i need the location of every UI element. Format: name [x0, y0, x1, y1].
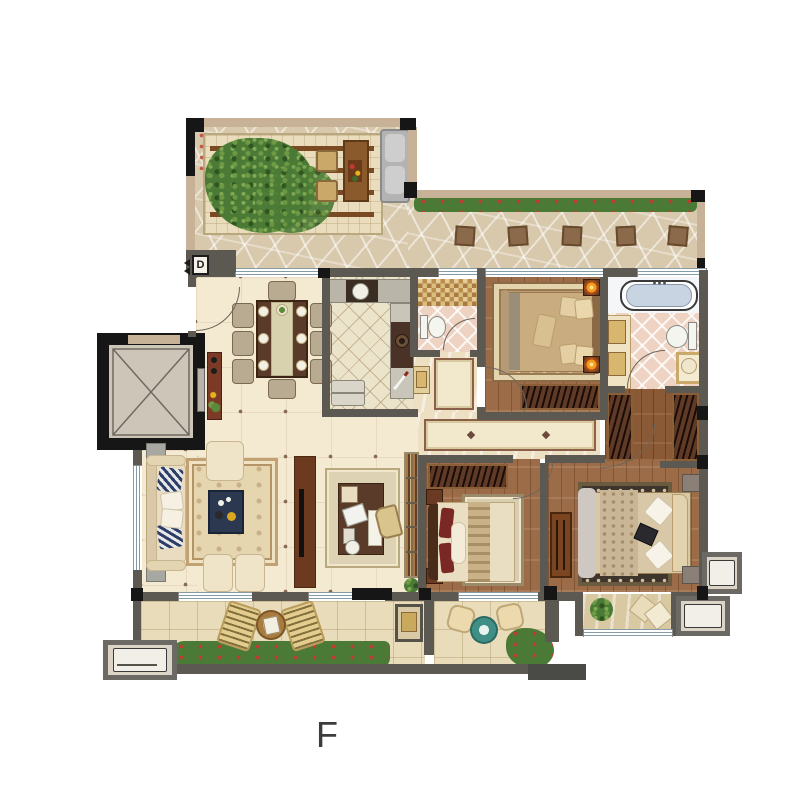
balcony-table-paper	[262, 616, 280, 636]
nightstand	[682, 474, 700, 492]
wall	[470, 350, 485, 357]
drain-arrow-icon	[184, 267, 190, 275]
balcony-step	[528, 664, 586, 680]
coffee-table-teapot	[215, 511, 223, 519]
coffee-table-bowl	[227, 512, 236, 521]
paver-stone	[507, 225, 528, 246]
dining-chair	[268, 281, 296, 301]
wall	[410, 277, 418, 352]
wall	[699, 270, 708, 600]
elevator-x-mark	[112, 348, 190, 436]
window-dining	[235, 268, 327, 277]
tub-faucet	[652, 281, 666, 285]
wall	[605, 386, 625, 393]
elevator-door	[197, 368, 205, 412]
window-guest-bath	[438, 268, 479, 277]
table-lamp	[584, 357, 599, 372]
shower-drain	[681, 358, 697, 374]
bed2-headboard	[428, 504, 438, 580]
bed2-bolster	[451, 522, 466, 564]
column	[352, 588, 392, 600]
wall	[424, 595, 434, 655]
sofa-arm	[146, 560, 186, 571]
bookshelf	[404, 452, 419, 578]
coffee-table-cup	[226, 497, 231, 502]
wall	[133, 664, 545, 674]
paver-stone	[667, 225, 689, 247]
wall	[477, 412, 608, 420]
plate	[296, 360, 307, 371]
corridor-runner	[424, 419, 596, 451]
plate	[258, 333, 269, 344]
column	[186, 132, 195, 176]
wall	[410, 350, 440, 357]
bay-plant	[590, 598, 613, 621]
mop-sink-basin	[401, 612, 417, 632]
bookshelf-cell	[406, 504, 417, 529]
wall	[603, 268, 637, 277]
tv-screen	[299, 489, 304, 557]
column	[131, 588, 143, 601]
column	[404, 182, 417, 198]
bed3-drape	[578, 488, 596, 578]
wall	[418, 455, 426, 595]
dressing-wardrobe-right	[672, 393, 699, 461]
centerpiece	[276, 304, 288, 316]
console-knob	[211, 368, 217, 374]
bed-footboard	[501, 290, 509, 374]
bath-sink	[608, 352, 626, 376]
bookshelf-cell	[406, 528, 417, 553]
balcony-slider	[458, 592, 540, 601]
armchair	[203, 554, 233, 592]
column	[544, 586, 557, 600]
wall	[186, 118, 416, 127]
window-living-south	[178, 592, 254, 601]
column	[131, 438, 143, 450]
wall	[477, 268, 485, 277]
armchair	[206, 441, 244, 481]
column	[697, 406, 708, 420]
dining-chair	[232, 331, 254, 356]
drain-arrow-icon	[184, 259, 190, 267]
console-knob	[211, 357, 217, 363]
table-lamp	[584, 280, 599, 295]
wall	[252, 592, 308, 601]
wall	[575, 592, 583, 636]
wall	[325, 268, 438, 277]
sofa-arm	[146, 455, 186, 466]
wall	[322, 409, 418, 417]
terrace-hedge	[414, 196, 697, 212]
tv-console	[294, 456, 316, 588]
pillow	[574, 298, 594, 320]
wall	[188, 331, 196, 337]
armoire-handle	[563, 520, 565, 570]
white-pillow	[160, 508, 184, 529]
column	[419, 588, 431, 600]
terrace-sofa-cushion	[385, 134, 405, 162]
column	[691, 190, 705, 202]
coffee-table-cup	[218, 500, 224, 506]
plate	[258, 306, 269, 317]
guest-toilet-bowl	[428, 316, 446, 338]
paver-stone	[615, 225, 636, 246]
plate	[296, 333, 307, 344]
ac-unit-line	[117, 664, 157, 666]
bed3-headboard	[672, 494, 688, 572]
terrace-chair	[316, 180, 338, 202]
blossom-flowers	[192, 130, 214, 170]
terrace-sofa-cushion	[385, 166, 405, 194]
master-wardrobe	[520, 384, 600, 410]
nightstand	[682, 566, 700, 584]
shower-mosaic-floor	[418, 279, 477, 306]
refrigerator-split	[331, 392, 365, 394]
paver-stone	[561, 225, 582, 246]
armchair	[235, 554, 265, 592]
wall	[418, 455, 513, 463]
bedroom2-wardrobe	[428, 464, 508, 489]
floor-plan: D F	[0, 0, 800, 800]
hall-sink-basin	[416, 371, 427, 388]
cooktop-burner	[395, 334, 409, 348]
wall	[540, 463, 548, 593]
column	[400, 118, 416, 130]
window-master	[485, 268, 605, 277]
guest-toilet-tank	[420, 315, 428, 339]
wall	[545, 455, 605, 463]
window-bath	[637, 268, 707, 277]
bookshelf-cell	[406, 553, 417, 576]
desk-fan	[345, 540, 360, 555]
ac-unit	[684, 604, 722, 628]
dining-chair	[232, 359, 254, 384]
bookshelf-cell	[406, 479, 417, 504]
dining-chair	[268, 379, 296, 399]
desk-lamp	[341, 486, 358, 503]
kitchen-sink-bowl	[352, 283, 369, 300]
bath-sink	[608, 320, 626, 344]
armoire-handle	[556, 520, 558, 570]
ac-unit	[113, 648, 167, 672]
flower-box	[348, 160, 362, 182]
terrace-chair	[316, 150, 338, 172]
bedroom3-armoire	[550, 512, 572, 578]
bed3-runner	[600, 490, 638, 576]
column	[697, 455, 708, 469]
plate	[296, 306, 307, 317]
unit-label: F	[316, 714, 339, 756]
column	[318, 268, 330, 278]
console-flowers	[208, 388, 221, 416]
toilet-tank	[688, 322, 697, 350]
column	[697, 586, 708, 600]
bookshelf-cell	[406, 454, 417, 479]
elevator-lintel	[128, 335, 180, 344]
patio-table	[470, 616, 498, 644]
plate	[258, 360, 269, 371]
bed2-runner	[468, 502, 490, 582]
drain-marker: D	[192, 255, 209, 275]
wall	[322, 277, 330, 417]
striped-pillow	[156, 466, 183, 493]
toilet-bowl	[666, 325, 688, 348]
hall-rug	[434, 358, 474, 410]
paver-stone	[454, 225, 475, 246]
column	[186, 118, 204, 132]
bay-window-glass	[583, 629, 673, 637]
corridor-plant	[404, 578, 419, 593]
ac-unit	[709, 560, 735, 586]
bathtub-water	[626, 284, 692, 307]
window-living	[133, 465, 142, 572]
wall	[408, 190, 705, 198]
